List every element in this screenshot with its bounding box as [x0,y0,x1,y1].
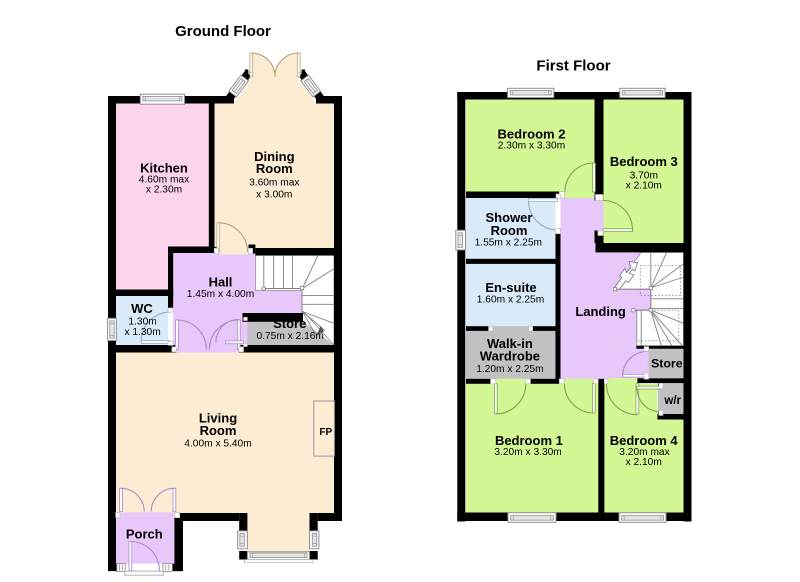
svg-text:0.75m x 2.16m: 0.75m x 2.16m [257,331,324,342]
svg-text:Bedroom 1: Bedroom 1 [495,433,563,448]
svg-text:En-suite: En-suite [485,280,536,295]
svg-text:3.60m max: 3.60m max [249,177,299,188]
svg-text:1.55m x 2.25m: 1.55m x 2.25m [475,238,542,249]
svg-text:WC: WC [131,301,153,316]
svg-text:Porch: Porch [126,526,163,541]
svg-text:w/r: w/r [663,395,681,407]
svg-text:Store: Store [273,316,306,331]
svg-text:Room: Room [256,161,293,176]
svg-text:Wardrobe: Wardrobe [480,349,540,364]
svg-text:1.20m x 2.25m: 1.20m x 2.25m [476,364,543,375]
svg-text:x 2.10m: x 2.10m [626,181,662,192]
svg-text:Bedroom 2: Bedroom 2 [498,127,566,142]
svg-text:Kitchen: Kitchen [140,160,188,175]
svg-text:Landing: Landing [575,304,626,319]
svg-text:3.20m x 3.30m: 3.20m x 3.30m [494,447,561,458]
svg-text:x 2.30m: x 2.30m [146,185,182,196]
svg-text:Hall: Hall [209,275,233,290]
svg-text:1.60m x 2.25m: 1.60m x 2.25m [477,295,544,306]
svg-text:Bedroom 3: Bedroom 3 [610,154,678,169]
svg-text:x 2.10m: x 2.10m [626,457,662,468]
svg-text:Ground Floor: Ground Floor [175,23,271,40]
svg-text:Room: Room [200,423,237,438]
svg-text:4.00m x 5.40m: 4.00m x 5.40m [184,439,251,450]
svg-text:x 1.30m: x 1.30m [124,327,160,338]
svg-text:2.30m x 3.30m: 2.30m x 3.30m [498,141,565,152]
svg-text:Bedroom 4: Bedroom 4 [610,433,679,448]
svg-text:First Floor: First Floor [536,58,610,75]
svg-text:1.45m x 4.00m: 1.45m x 4.00m [187,289,254,300]
svg-text:Room: Room [491,223,528,238]
svg-text:Store: Store [651,357,683,371]
svg-text:x 3.00m: x 3.00m [256,190,292,201]
svg-text:FP: FP [319,427,332,438]
